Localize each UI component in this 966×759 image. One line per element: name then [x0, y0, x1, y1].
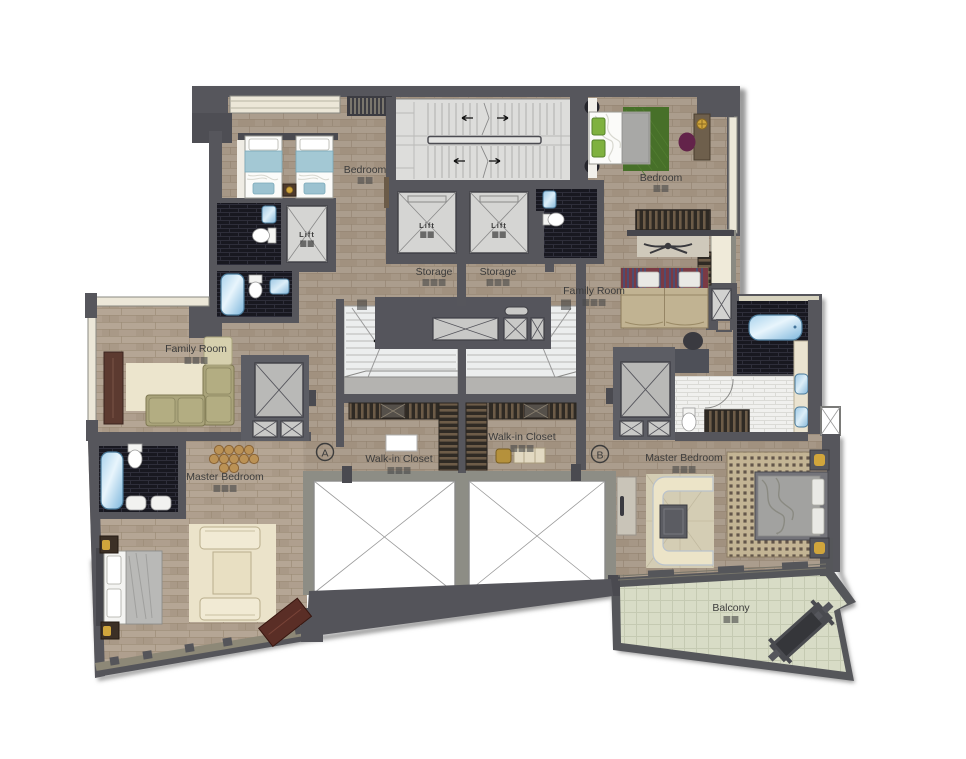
- svg-text:Lift: Lift: [491, 221, 507, 230]
- svg-text:Storage: Storage: [480, 266, 517, 278]
- svg-text:Master Bedroom: Master Bedroom: [186, 471, 264, 483]
- svg-text:Balcony: Balcony: [712, 602, 750, 614]
- svg-text:A: A: [321, 448, 328, 460]
- svg-text:Family Room: Family Room: [165, 343, 227, 355]
- svg-text:B: B: [596, 450, 603, 462]
- svg-text:Family Room: Family Room: [563, 285, 625, 297]
- svg-text:Lift: Lift: [419, 221, 435, 230]
- svg-text:Lift: Lift: [299, 230, 315, 239]
- svg-text:Storage: Storage: [416, 266, 453, 278]
- svg-text:Master Bedroom: Master Bedroom: [645, 452, 723, 464]
- svg-text:Bedroom: Bedroom: [640, 172, 683, 184]
- svg-text:Walk-in Closet: Walk-in Closet: [488, 431, 555, 443]
- svg-text:Bedroom: Bedroom: [344, 164, 387, 176]
- svg-text:Walk-in Closet: Walk-in Closet: [365, 453, 432, 465]
